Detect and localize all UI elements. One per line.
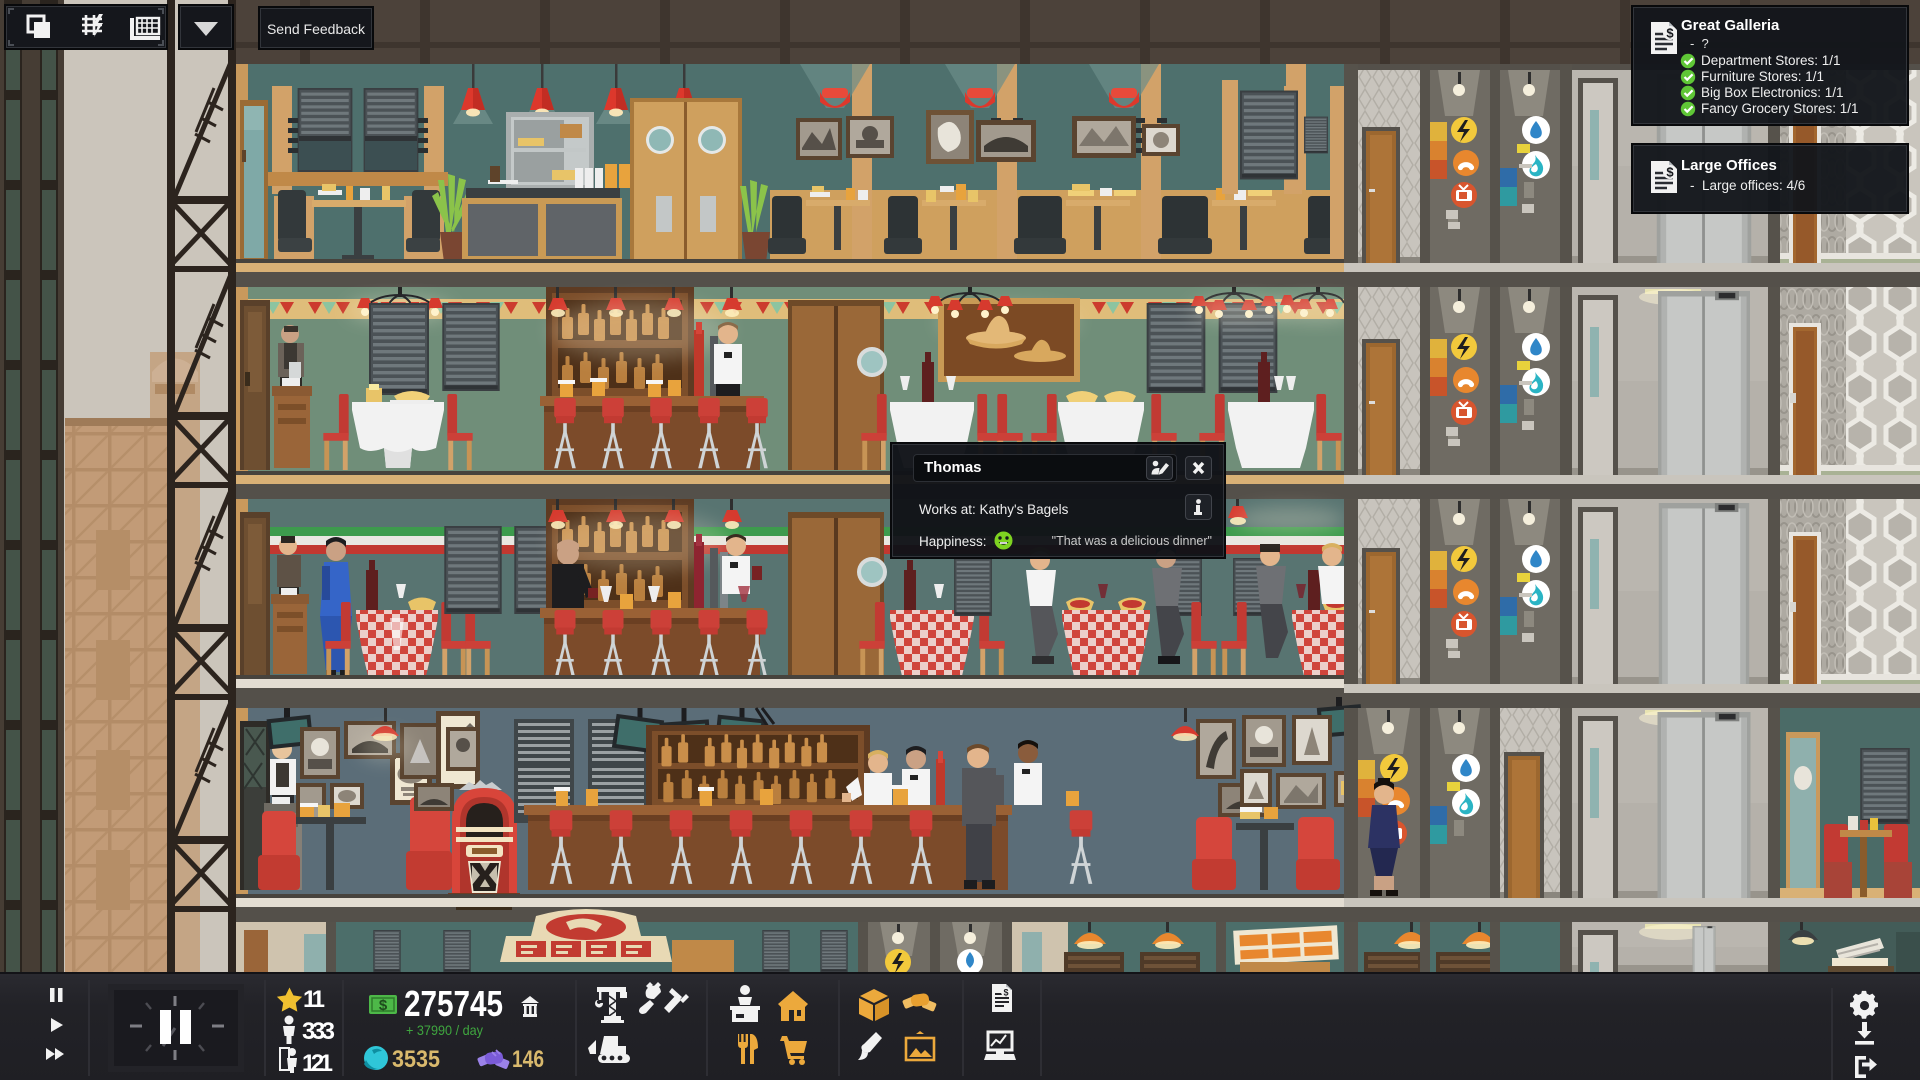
svg-text:146: 146 [512,1046,544,1073]
svg-text:$: $ [1666,165,1674,180]
svg-text:+ 37990 / day: + 37990 / day [406,1022,483,1038]
svg-text:333: 333 [302,1018,335,1045]
svg-text:11: 11 [303,986,325,1013]
svg-text:$: $ [379,997,388,1014]
svg-text:275745: 275745 [404,983,503,1024]
svg-text:$: $ [1003,988,1008,998]
svg-text:$: $ [1666,26,1674,41]
svg-text:3535: 3535 [392,1046,440,1073]
svg-text:121: 121 [302,1050,333,1077]
